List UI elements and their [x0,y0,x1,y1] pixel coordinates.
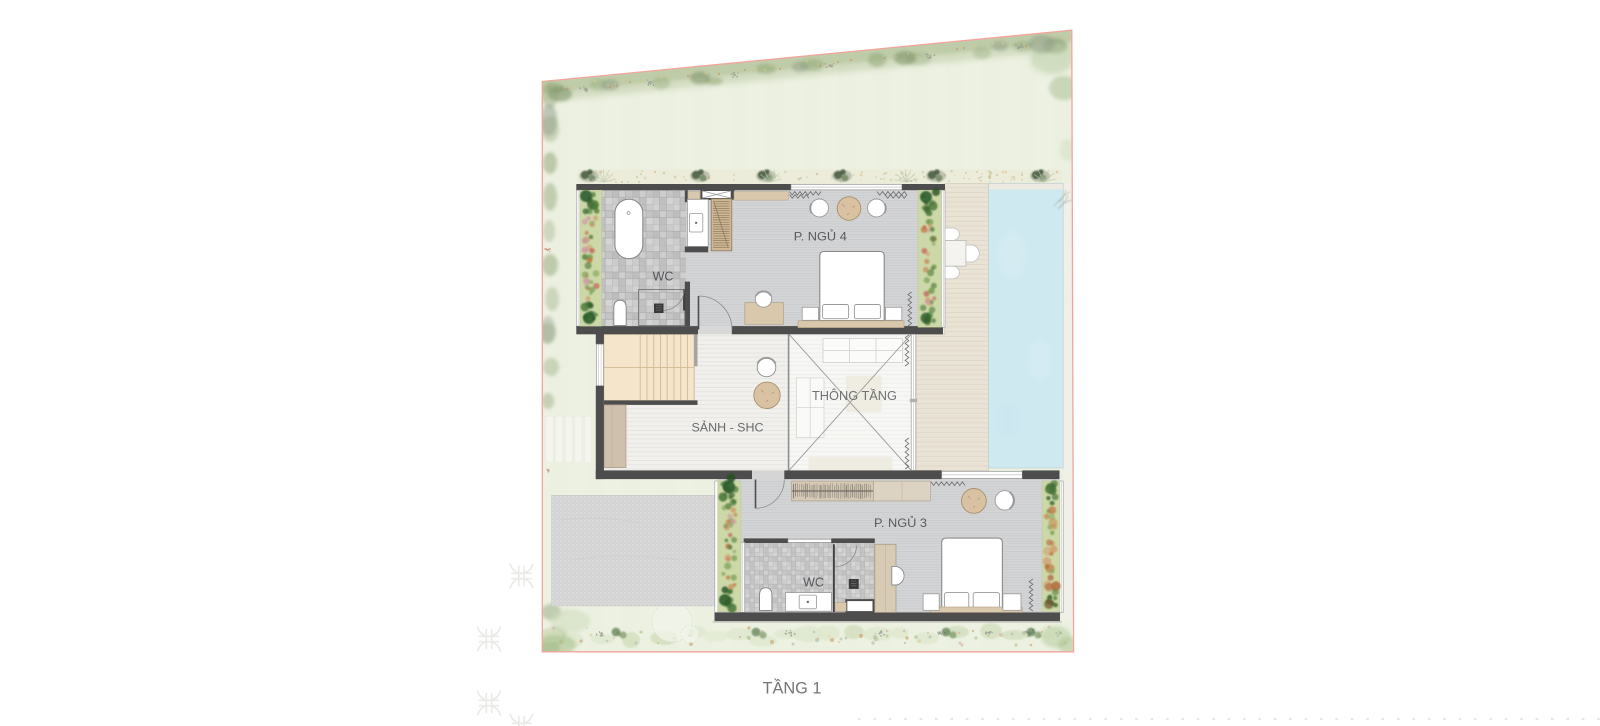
svg-text:P. NGỦ 3: P. NGỦ 3 [874,515,927,530]
svg-text:WC: WC [803,576,824,590]
svg-text:TẦNG 1: TẦNG 1 [763,679,822,698]
svg-text:P. NGỦ 4: P. NGỦ 4 [794,229,847,244]
svg-text:THÔNG TẦNG: THÔNG TẦNG [812,388,897,403]
svg-text:SẢNH - SHC: SẢNH - SHC [692,420,764,435]
svg-text:WC: WC [653,270,674,284]
